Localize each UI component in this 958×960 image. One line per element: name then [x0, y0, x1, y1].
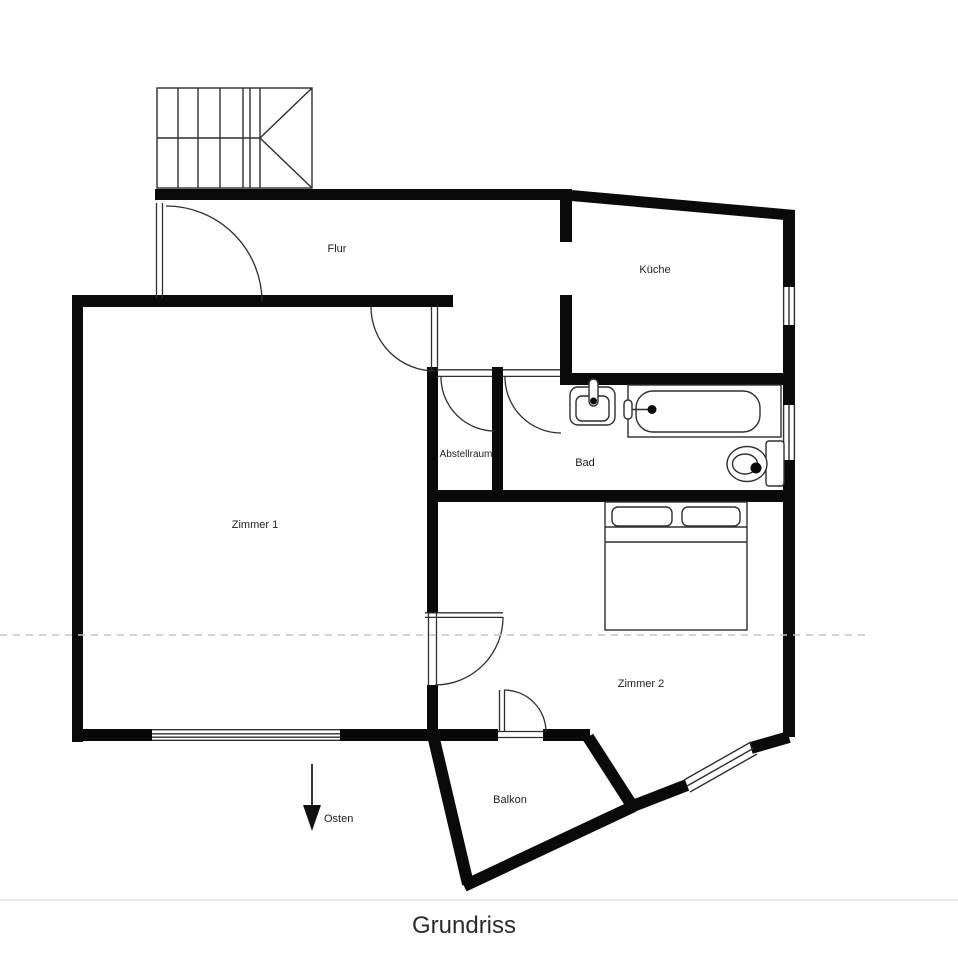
door-zimmer1-zimmer2 [425, 613, 503, 685]
wall-zimmer2-diag-b [751, 737, 789, 748]
door-abstellraum [438, 370, 495, 431]
room-label-zimmer2: Zimmer 2 [618, 678, 664, 690]
door-entrance [157, 203, 263, 302]
room-label-bad: Bad [575, 457, 595, 469]
room-label-zimmer1: Zimmer 1 [232, 519, 278, 531]
door-bad [503, 370, 561, 433]
compass-label: Osten [324, 813, 353, 825]
wall-zimmer1-left [72, 295, 83, 742]
plan-title: Grundriss [412, 912, 516, 939]
stairs-icon [157, 88, 312, 188]
wall-kueche-top-sloped [560, 189, 795, 221]
wall-bottom-c [543, 729, 590, 741]
window-bad [783, 405, 795, 460]
room-label-abstellraum: Abstellraum [440, 449, 493, 460]
wall-balkon-right [588, 737, 633, 807]
door-balkon [498, 690, 546, 741]
window-zimmer2-diagonal [684, 742, 757, 792]
wall-balkon-left [433, 735, 468, 884]
room-label-kueche: Küche [639, 264, 670, 276]
wall-flur-top [155, 189, 570, 200]
floor-plan-page: Osten Flur Küche Abstellraum Bad Zimmer … [0, 0, 958, 960]
double-bed-icon [605, 502, 747, 630]
sink-icon [570, 379, 615, 425]
wall-abstellraum-right [492, 367, 503, 502]
room-label-balkon: Balkon [493, 794, 527, 806]
wall-flur-kueche-lower [560, 295, 572, 385]
wall-flur-kueche-upper [560, 189, 572, 242]
window-zimmer1 [152, 729, 340, 741]
bathtub-icon [624, 385, 781, 437]
wall-right-upper [783, 210, 795, 287]
floor-plan-drawing: Osten Flur Küche Abstellraum Bad Zimmer … [0, 0, 958, 960]
south-east-arrow-head [303, 805, 321, 831]
wall-divider-lower [427, 685, 438, 741]
door-zimmer1 [371, 307, 438, 371]
window-kueche [783, 287, 795, 325]
wall-bottom-b [340, 729, 498, 741]
room-label-flur: Flur [328, 243, 347, 255]
wall-zimmer2-diag-a [633, 785, 687, 806]
wall-bottom-a [72, 729, 152, 741]
wall-balkon-bottom [464, 806, 634, 886]
compass: Osten [303, 764, 353, 831]
fixtures [570, 379, 784, 630]
toilet-icon [727, 441, 784, 486]
wall-right-mid [783, 325, 795, 405]
wall-bad-bottom [427, 490, 793, 502]
